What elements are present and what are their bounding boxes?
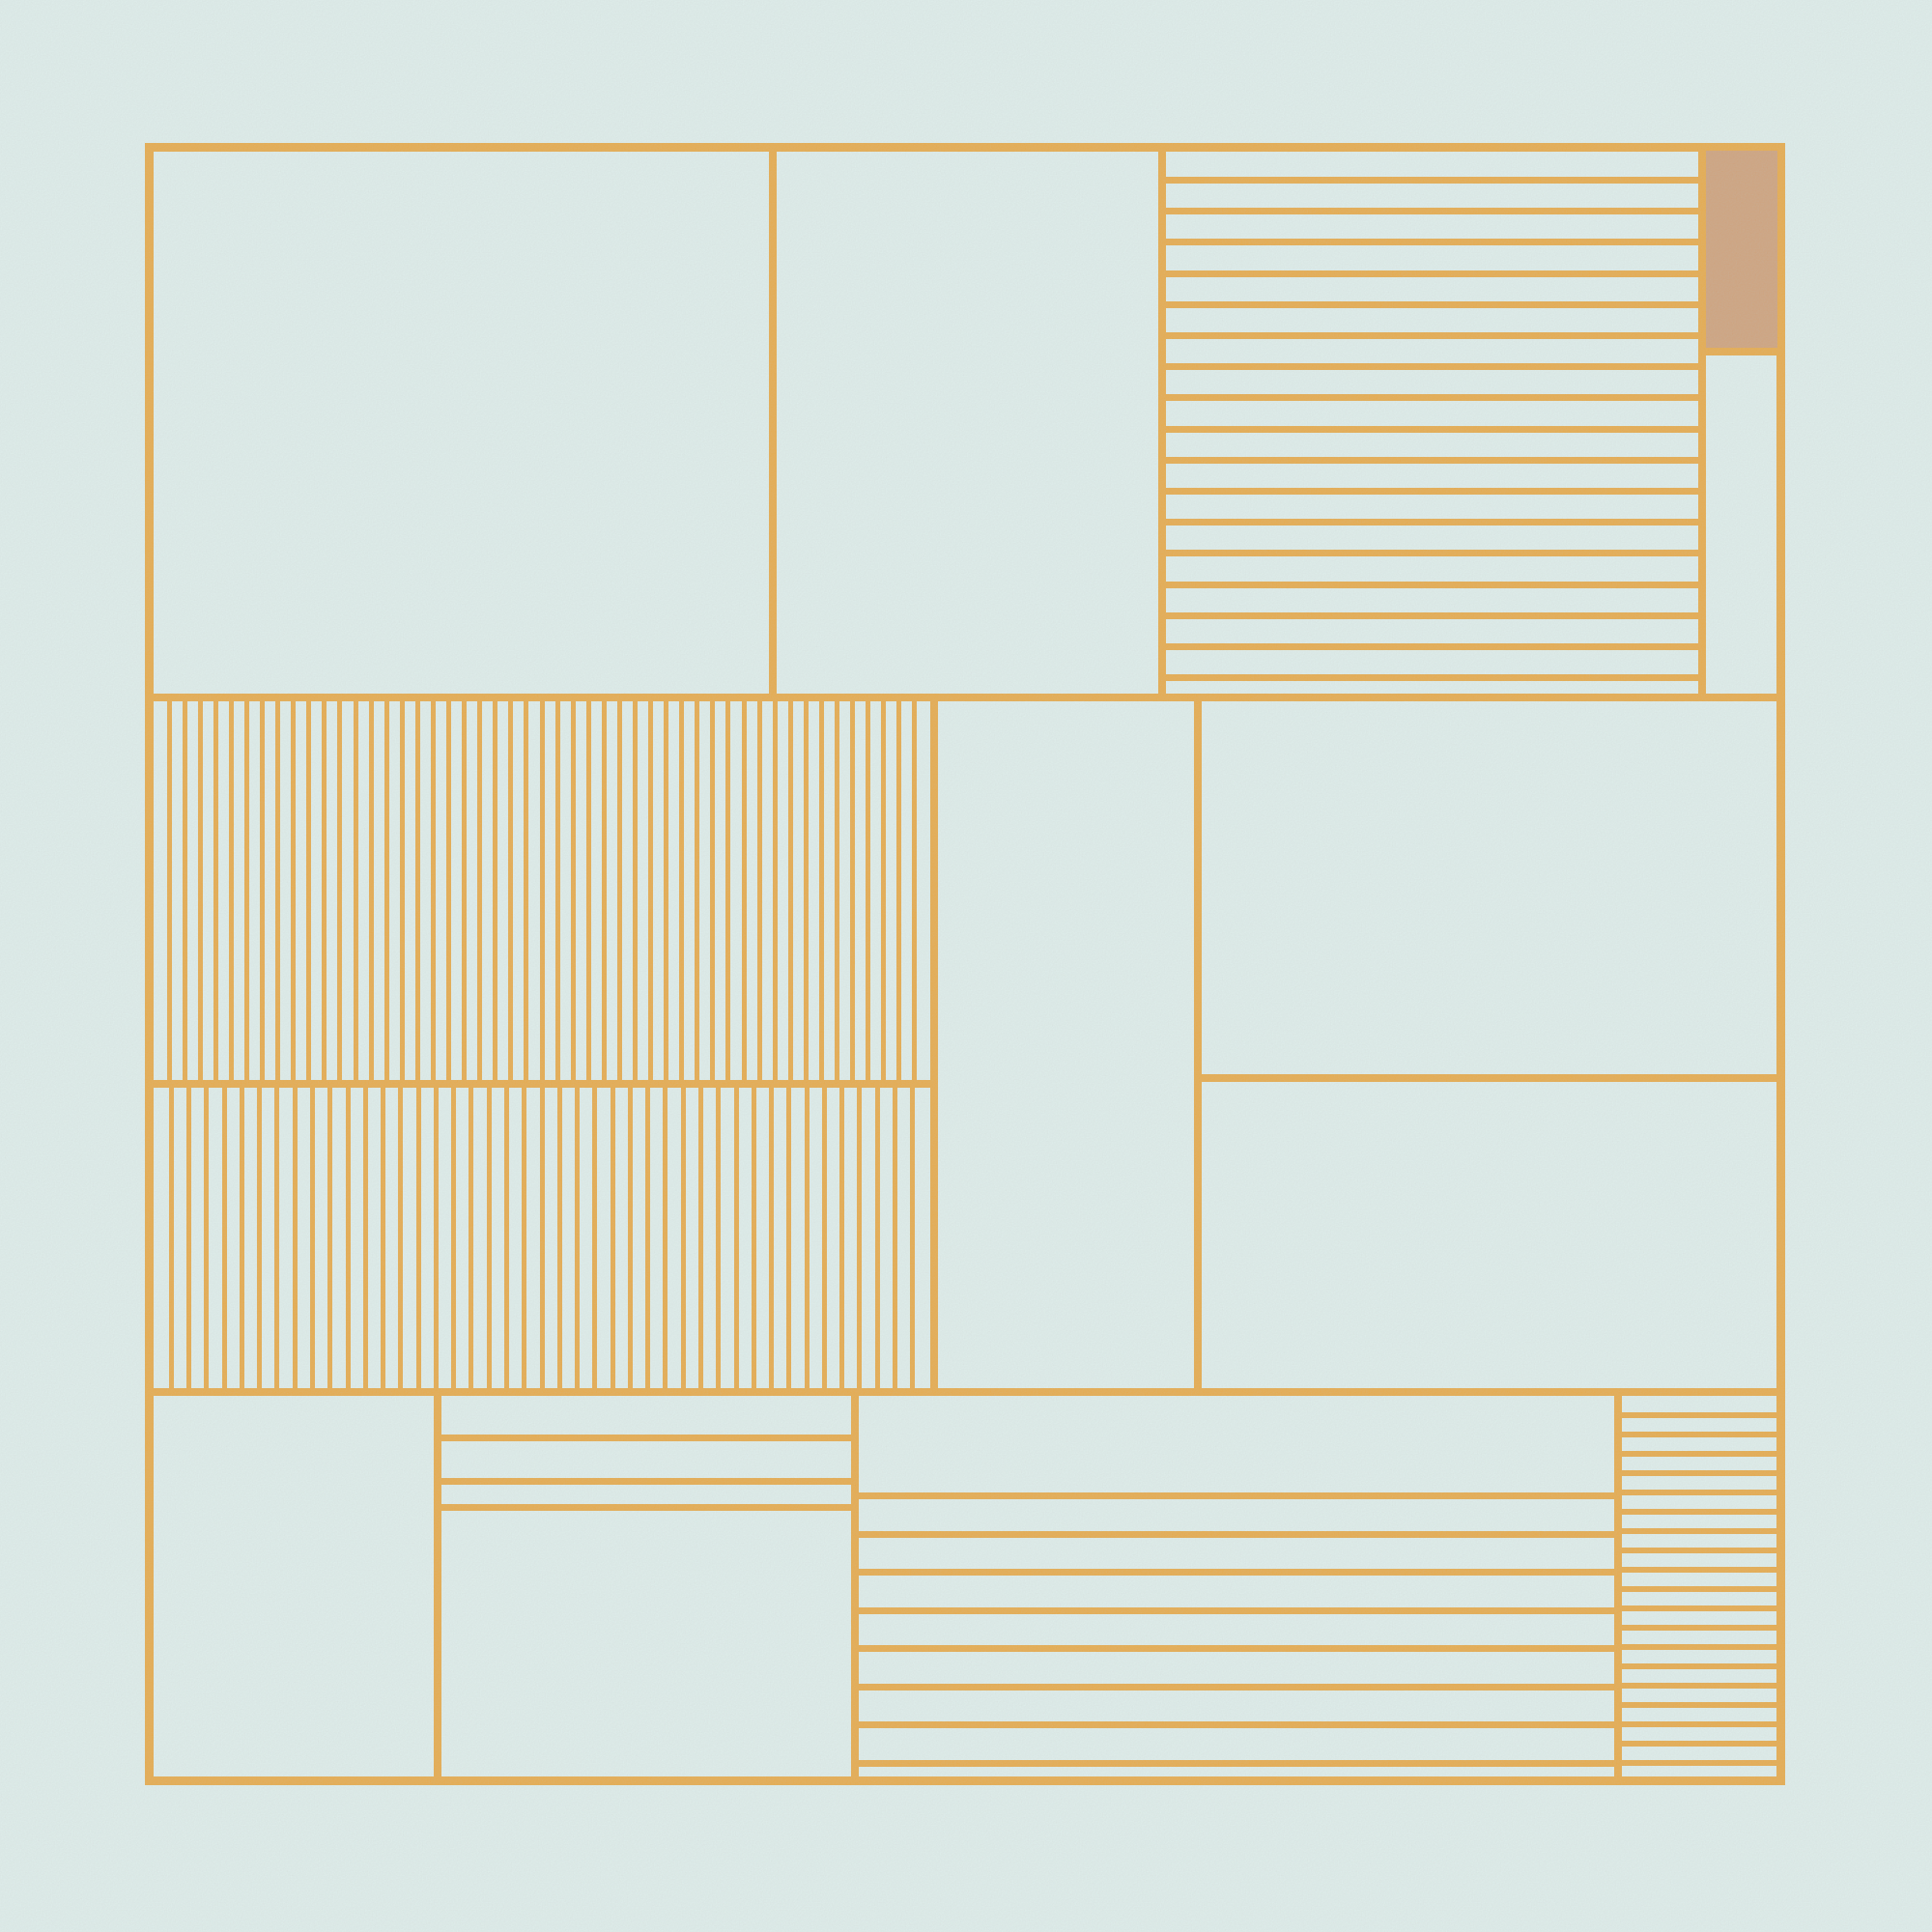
- vstripes-upper-band-line: [477, 701, 482, 1080]
- vstripes-upper-band-line: [804, 701, 809, 1080]
- top-right-hlines-panel-line: [1166, 177, 1698, 184]
- vstripes-lower-band-line: [769, 1088, 774, 1388]
- bottom-left-hlines-panel: [441, 1396, 851, 1776]
- bottom-center-hlines-panel-line: [859, 1492, 1614, 1499]
- vstripes-lower-band-line: [257, 1088, 262, 1388]
- bottom-center-hlines-panel: [859, 1396, 1614, 1776]
- vstripes-lower-band-line: [469, 1088, 473, 1388]
- top-right-hlines-panel-line: [1166, 239, 1698, 245]
- stripe-band-divider: [145, 1080, 938, 1088]
- row-divider-top: [145, 694, 1785, 701]
- vstripes-lower-band-line: [575, 1088, 580, 1388]
- bottom-center-hlines-panel-line: [859, 1645, 1614, 1652]
- vstripes-lower-band-line: [663, 1088, 668, 1388]
- top-row-divider-1: [769, 143, 777, 701]
- bottom-center-hlines-panel-line: [859, 1760, 1614, 1767]
- top-right-hlines-panel-line: [1166, 674, 1698, 681]
- bottom-row-divider-3: [1614, 1388, 1622, 1785]
- vstripes-upper-band-line: [679, 701, 684, 1080]
- bottom-right-hlines-panel-line: [1622, 1567, 1785, 1573]
- vstripes-upper-band-line: [866, 701, 870, 1080]
- vstripes-upper-band-line: [493, 701, 497, 1080]
- vstripes-lower-band-line: [611, 1088, 615, 1388]
- bottom-right-hlines-panel-line: [1622, 1490, 1785, 1495]
- vstripes-lower-band-line: [592, 1088, 597, 1388]
- vstripes-upper-band: [154, 701, 930, 1080]
- vstripes-lower-band-line: [786, 1088, 791, 1388]
- vstripes-upper-band-line: [617, 701, 622, 1080]
- top-right-hlines-panel-line: [1166, 457, 1698, 464]
- vstripes-upper-band-line: [508, 701, 513, 1080]
- top-right-hlines-panel-line: [1166, 270, 1698, 277]
- vstripes-lower-band-line: [822, 1088, 827, 1388]
- vstripes-upper-band-line: [540, 701, 545, 1080]
- vstripes-upper-band-line: [384, 701, 389, 1080]
- vstripes-upper-band-line: [881, 701, 886, 1080]
- bottom-center-hlines-panel-line: [859, 1684, 1614, 1690]
- top-right-hlines-panel-line: [1166, 332, 1698, 339]
- vstripes-lower-band-line: [681, 1088, 686, 1388]
- vstripes-upper-band-line: [229, 701, 234, 1080]
- bottom-right-hlines-panel-line: [1622, 1644, 1785, 1650]
- bottom-right-hlines-panel-line: [1622, 1683, 1785, 1689]
- vstripes-upper-band-line: [291, 701, 296, 1080]
- bottom-right-hlines-panel-line: [1622, 1586, 1785, 1592]
- top-right-hlines-panel-line: [1166, 394, 1698, 401]
- vstripes-upper-band-line: [213, 701, 218, 1080]
- bottom-right-hlines-panel-line: [1622, 1721, 1785, 1727]
- bottom-right-hlines-panel-line: [1622, 1509, 1785, 1515]
- vstripes-lower-band-line: [875, 1088, 880, 1388]
- vstripes-lower-band-line: [839, 1088, 844, 1388]
- vstripes-upper-band-line: [602, 701, 607, 1080]
- top-right-hlines-panel-line: [1166, 301, 1698, 308]
- top-right-hlines-panel-line: [1166, 582, 1698, 588]
- vstripes-lower-band-line: [522, 1088, 526, 1388]
- bottom-center-hlines-panel-line: [859, 1607, 1614, 1614]
- vstripes-lower-band-line: [222, 1088, 227, 1388]
- bottom-row-divider-1: [434, 1388, 441, 1785]
- bottom-right-hlines-panel-line: [1622, 1702, 1785, 1708]
- bottom-right-hlines-panel-line: [1622, 1470, 1785, 1476]
- vstripes-lower-band: [154, 1088, 930, 1388]
- bottom-center-hlines-panel-line: [859, 1569, 1614, 1576]
- vstripes-upper-band-line: [757, 701, 762, 1080]
- vstripes-upper-band-line: [415, 701, 420, 1080]
- vstripes-lower-band-line: [293, 1088, 298, 1388]
- vstripes-upper-band-line: [260, 701, 265, 1080]
- bottom-right-hlines-panel: [1622, 1396, 1785, 1776]
- vstripes-upper-band-line: [244, 701, 249, 1080]
- vstripes-lower-band-line: [540, 1088, 545, 1388]
- vstripes-lower-band-line: [504, 1088, 509, 1388]
- bottom-right-hlines-panel-line: [1622, 1605, 1785, 1611]
- vstripes-upper-band-line: [167, 701, 172, 1080]
- vstripes-lower-band-line: [381, 1088, 385, 1388]
- bottom-left-hlines-panel-line: [441, 1504, 851, 1511]
- vstripes-lower-band-line: [169, 1088, 174, 1388]
- vstripes-upper-band-line: [850, 701, 855, 1080]
- vstripes-lower-band-line: [186, 1088, 191, 1388]
- bottom-right-hlines-panel-line: [1622, 1528, 1785, 1534]
- vstripes-upper-band-line: [725, 701, 730, 1080]
- vstripes-lower-band-line: [645, 1088, 650, 1388]
- bottom-left-hlines-panel-line: [441, 1478, 851, 1485]
- vstripes-lower-band-line: [416, 1088, 421, 1388]
- vstripes-lower-band-line: [274, 1088, 279, 1388]
- bottom-row-divider-2: [851, 1388, 859, 1785]
- top-right-hlines-panel: [1166, 152, 1698, 694]
- vstripes-upper-band-line: [896, 701, 901, 1080]
- vstripes-upper-band-line: [524, 701, 528, 1080]
- vstripes-upper-band-line: [695, 701, 699, 1080]
- bottom-right-hlines-panel-line: [1622, 1741, 1785, 1747]
- vstripes-lower-band-line: [346, 1088, 351, 1388]
- vstripes-lower-band-line: [805, 1088, 810, 1388]
- vstripes-lower-band-line: [698, 1088, 703, 1388]
- top-right-hlines-panel-line: [1166, 550, 1698, 556]
- vstripes-upper-band-line: [306, 701, 311, 1080]
- vstripes-upper-band-line: [586, 701, 591, 1080]
- bottom-right-hlines-panel-line: [1622, 1412, 1785, 1418]
- vstripes-upper-band-line: [633, 701, 638, 1080]
- vstripes-lower-band-line: [451, 1088, 456, 1388]
- bottom-right-hlines-panel-line: [1622, 1548, 1785, 1553]
- vstripes-upper-band-line: [664, 701, 668, 1080]
- row-divider-bottom: [145, 1388, 1785, 1396]
- vstripes-upper-band-line: [710, 701, 715, 1080]
- bottom-right-hlines-panel-line: [1622, 1760, 1785, 1766]
- vstripes-lower-band-line: [310, 1088, 315, 1388]
- vstripes-upper-band-line: [354, 701, 358, 1080]
- vstripes-lower-band-line: [557, 1088, 562, 1388]
- vstripes-upper-band-line: [555, 701, 560, 1080]
- bottom-right-hlines-panel-line: [1622, 1432, 1785, 1437]
- vstripes-upper-band-line: [835, 701, 839, 1080]
- vstripes-upper-band-line: [275, 701, 280, 1080]
- bottom-left-hlines-panel-line: [441, 1435, 851, 1441]
- vstripes-lower-band-line: [327, 1088, 332, 1388]
- vstripes-lower-band-line: [363, 1088, 368, 1388]
- vstripes-lower-band-line: [910, 1088, 915, 1388]
- vstripes-lower-band-line: [716, 1088, 721, 1388]
- vstripes-upper-band-line: [183, 701, 187, 1080]
- vstripes-upper-band-line: [400, 701, 405, 1080]
- vstripes-upper-band-line: [198, 701, 203, 1080]
- tan-filled-rect: [1698, 143, 1785, 355]
- top-right-hlines-panel-line: [1166, 612, 1698, 619]
- vstripes-lower-band-line: [398, 1088, 403, 1388]
- top-right-hlines-panel-line: [1166, 519, 1698, 526]
- vstripes-lower-band-line: [487, 1088, 492, 1388]
- artwork-stage: [0, 0, 1932, 1932]
- right-cell-divider: [1194, 1074, 1785, 1082]
- top-right-hlines-panel-line: [1166, 208, 1698, 214]
- vstripes-upper-band-line: [648, 701, 653, 1080]
- vstripes-lower-band-line: [434, 1088, 439, 1388]
- vstripes-upper-band-line: [571, 701, 576, 1080]
- top-row-divider-2: [1158, 143, 1166, 701]
- bottom-center-hlines-panel-line: [859, 1531, 1614, 1538]
- vstripes-lower-band-line: [734, 1088, 739, 1388]
- middle-row-divider-right: [1194, 694, 1202, 1396]
- vstripes-upper-band-line: [912, 701, 917, 1080]
- vstripes-lower-band-line: [893, 1088, 897, 1388]
- bottom-right-hlines-panel-line: [1622, 1451, 1785, 1457]
- vstripes-upper-band-line: [742, 701, 747, 1080]
- vstripes-upper-band-line: [819, 701, 824, 1080]
- vstripes-lower-band-line: [240, 1088, 244, 1388]
- vstripes-upper-band-line: [788, 701, 793, 1080]
- vstripes-lower-band-line: [204, 1088, 209, 1388]
- vstripes-upper-band-line: [322, 701, 327, 1080]
- bottom-center-hlines-panel-line: [859, 1721, 1614, 1728]
- vstripes-upper-band-line: [431, 701, 436, 1080]
- top-right-hlines-panel-line: [1166, 426, 1698, 433]
- vstripes-upper-band-line: [462, 701, 467, 1080]
- vstripes-lower-band-line: [752, 1088, 756, 1388]
- bottom-right-hlines-panel-line: [1622, 1663, 1785, 1669]
- top-right-hlines-panel-line: [1166, 488, 1698, 495]
- vstripes-upper-band-line: [337, 701, 342, 1080]
- stripe-region-right-edge: [930, 694, 938, 1396]
- vstripes-lower-band-line: [857, 1088, 862, 1388]
- top-right-hlines-panel-line: [1166, 363, 1698, 370]
- vstripes-lower-band-line: [628, 1088, 633, 1388]
- vstripes-upper-band-line: [446, 701, 451, 1080]
- bottom-right-hlines-panel-line: [1622, 1625, 1785, 1631]
- top-right-hlines-panel-line: [1166, 643, 1698, 650]
- vstripes-upper-band-line: [369, 701, 374, 1080]
- vstripes-upper-band-line: [773, 701, 778, 1080]
